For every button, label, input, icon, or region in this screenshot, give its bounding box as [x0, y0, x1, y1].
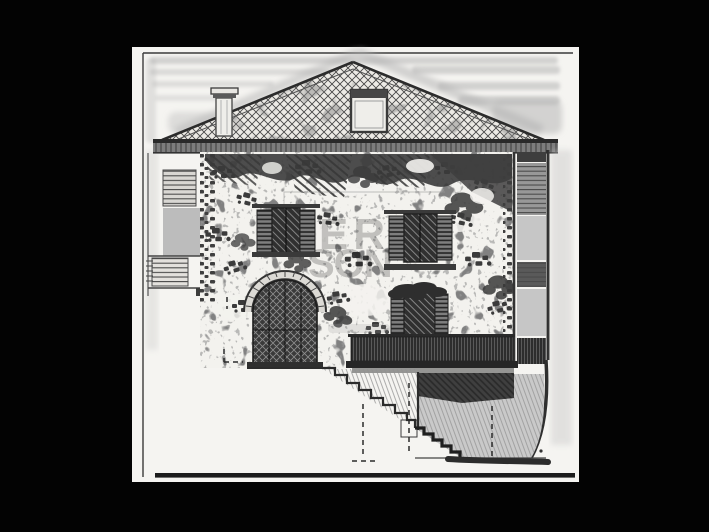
- roof-window: [351, 90, 387, 132]
- elevation-drawing: ER SON: [0, 0, 709, 532]
- watermark: ER SON: [308, 210, 392, 286]
- eave-cornice: [153, 139, 558, 154]
- window-lower-right: [388, 282, 448, 336]
- watermark-line-2: SON: [308, 242, 392, 286]
- window-upper-left: [252, 204, 320, 257]
- balcony: [346, 334, 518, 373]
- sheet-bottom-border: [155, 473, 575, 478]
- screenshot-canvas: ER SON: [0, 0, 709, 532]
- arched-door: [244, 270, 326, 369]
